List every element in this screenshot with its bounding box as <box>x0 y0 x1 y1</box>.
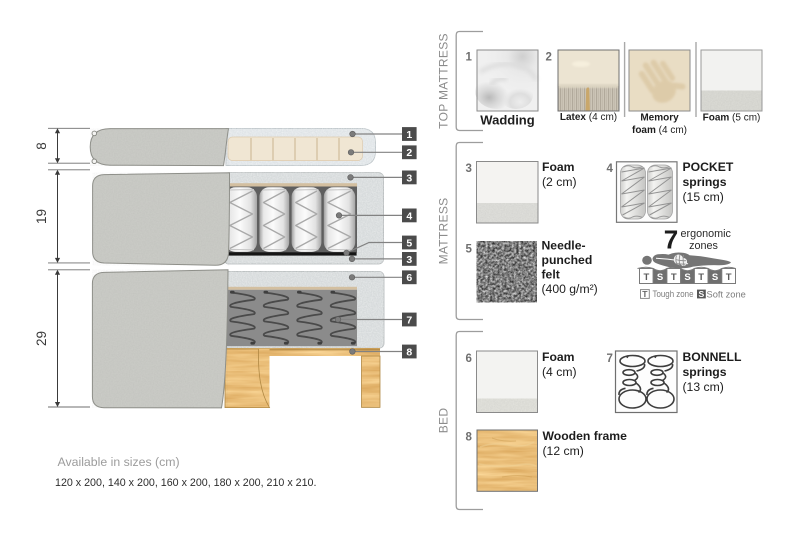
svg-text:BONNELL: BONNELL <box>683 350 742 364</box>
svg-text:S: S <box>699 289 705 299</box>
svg-text:(2 cm): (2 cm) <box>542 175 577 189</box>
svg-text:2: 2 <box>406 147 412 159</box>
svg-text:springs: springs <box>683 365 727 379</box>
svg-text:120 x 200, 140 x 200, 160 x 20: 120 x 200, 140 x 200, 160 x 200, 180 x 2… <box>55 477 316 489</box>
svg-text:(13 cm): (13 cm) <box>683 380 724 394</box>
svg-text:POCKET: POCKET <box>683 160 734 174</box>
svg-text:7: 7 <box>607 353 613 365</box>
svg-text:7: 7 <box>406 314 412 326</box>
svg-text:T: T <box>698 272 704 283</box>
svg-text:5: 5 <box>466 244 473 256</box>
svg-text:3: 3 <box>406 172 412 184</box>
svg-text:foam (4 cm): foam (4 cm) <box>632 125 687 136</box>
svg-text:Available in sizes (cm): Available in sizes (cm) <box>58 455 180 469</box>
svg-text:zones: zones <box>689 240 718 252</box>
svg-text:8: 8 <box>406 346 412 358</box>
svg-text:(400 g/m²): (400 g/m²) <box>542 282 598 296</box>
svg-text:1: 1 <box>406 129 412 141</box>
svg-text:S: S <box>657 272 663 283</box>
svg-text:Wooden frame: Wooden frame <box>543 429 628 443</box>
svg-text:punched: punched <box>542 253 593 267</box>
svg-text:19: 19 <box>34 209 49 224</box>
svg-text:TOP MATTRESS: TOP MATTRESS <box>437 33 451 129</box>
svg-text:Soft zone: Soft zone <box>707 290 746 300</box>
svg-text:springs: springs <box>683 175 727 189</box>
svg-text:S: S <box>712 272 718 283</box>
svg-text:3: 3 <box>466 163 472 175</box>
svg-text:Tough zone: Tough zone <box>653 289 694 299</box>
svg-text:felt: felt <box>542 268 560 282</box>
svg-text:4: 4 <box>406 210 412 222</box>
svg-text:(4 cm): (4 cm) <box>542 365 577 379</box>
svg-text:Memory: Memory <box>640 113 679 124</box>
svg-text:5: 5 <box>406 237 412 249</box>
svg-text:Foam: Foam <box>542 350 575 364</box>
svg-text:Foam (5 cm): Foam (5 cm) <box>703 113 761 124</box>
svg-text:T: T <box>642 289 648 299</box>
svg-text:(12 cm): (12 cm) <box>543 444 584 458</box>
svg-text:8: 8 <box>34 142 49 150</box>
svg-text:(15 cm): (15 cm) <box>683 190 724 204</box>
svg-text:7: 7 <box>664 225 678 255</box>
svg-text:6: 6 <box>466 353 472 365</box>
svg-text:2: 2 <box>546 52 552 64</box>
svg-text:3: 3 <box>406 254 412 266</box>
svg-text:T: T <box>643 272 649 283</box>
svg-text:1: 1 <box>466 52 473 64</box>
svg-text:4: 4 <box>607 163 614 175</box>
svg-text:MATTRESS: MATTRESS <box>437 198 451 265</box>
svg-text:8: 8 <box>466 432 473 444</box>
svg-text:T: T <box>726 272 732 283</box>
svg-text:Wadding: Wadding <box>480 113 534 128</box>
svg-text:BED: BED <box>437 408 451 434</box>
svg-text:Foam: Foam <box>542 160 575 174</box>
svg-text:S: S <box>684 272 690 283</box>
svg-text:29: 29 <box>34 331 49 346</box>
svg-text:Latex (4 cm): Latex (4 cm) <box>560 112 617 123</box>
svg-text:6: 6 <box>406 272 412 284</box>
svg-text:Needle-: Needle- <box>542 239 586 253</box>
svg-text:ergonomic: ergonomic <box>681 228 732 240</box>
svg-text:T: T <box>671 272 677 283</box>
